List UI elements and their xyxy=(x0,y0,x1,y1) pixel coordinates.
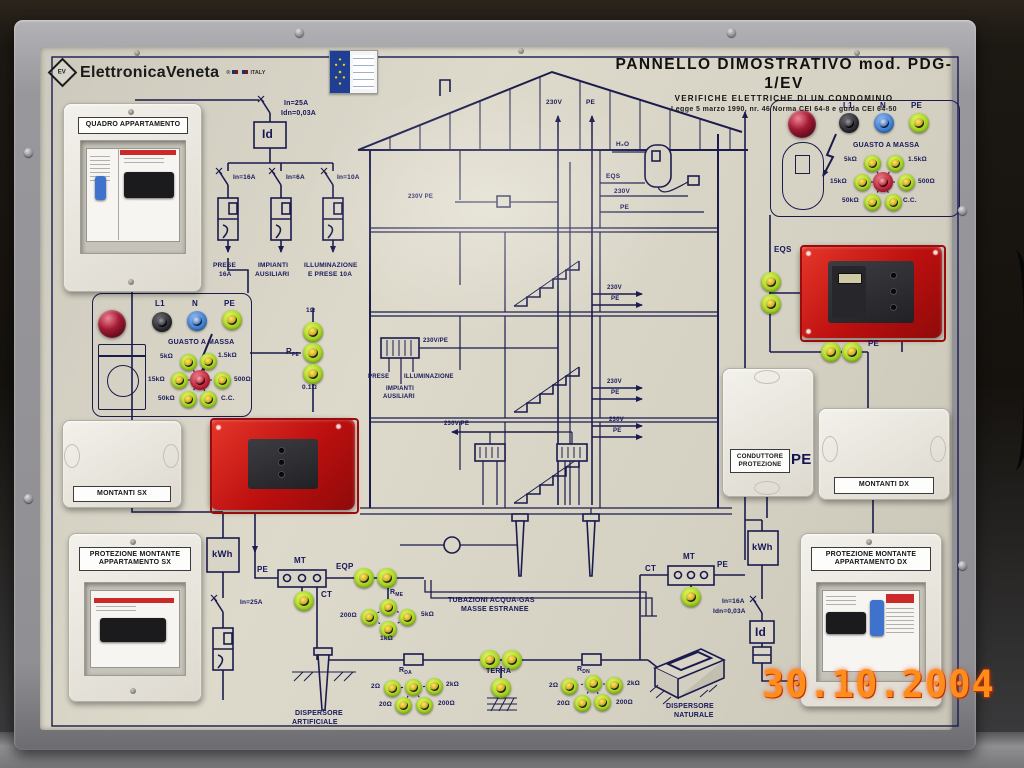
screw-icon xyxy=(727,28,736,37)
dispersore-label: ARTIFICIALE xyxy=(292,719,338,726)
rme-name: RME xyxy=(390,589,403,598)
mcb-toggle[interactable] xyxy=(100,618,166,642)
circuit-label: IMPIANTI xyxy=(258,263,288,270)
resistor-value: 2kΩ xyxy=(446,682,459,689)
screw-icon xyxy=(958,206,967,215)
terminal-label: PE xyxy=(224,300,235,308)
resistor-value: 50kΩ xyxy=(842,198,859,205)
breaker-red-stripe xyxy=(94,598,174,603)
mt-jack[interactable] xyxy=(681,587,701,607)
floor-feed-label: 230V xyxy=(607,379,622,385)
dispersore-label: NATURALE xyxy=(674,712,714,719)
resistor-value: 200Ω xyxy=(616,700,633,707)
pipe-label: TUBAZIONI ACQUA-GAS xyxy=(448,597,535,604)
protezione-dx-label: PROTEZIONE MONTANTEAPPARTAMENTO DX xyxy=(811,547,931,571)
terminal-label: L1 xyxy=(155,300,165,308)
breaker-markings xyxy=(826,596,856,606)
banana-jack-n[interactable] xyxy=(187,311,207,331)
fault-resistor-jack[interactable] xyxy=(887,155,904,172)
mcb-toggle[interactable] xyxy=(124,172,174,198)
mt-label: MT xyxy=(683,553,695,561)
knockout xyxy=(930,436,946,462)
prese-label: PRESE xyxy=(368,374,389,380)
breaker-markings xyxy=(96,606,136,612)
flash-glint xyxy=(336,424,341,429)
floor-feed-label: PE xyxy=(613,428,621,434)
power-cable xyxy=(998,250,1024,470)
fault-resistor-jack[interactable] xyxy=(180,354,197,371)
socket-hole xyxy=(891,289,896,294)
eqs-jack[interactable] xyxy=(761,294,781,314)
resistor-value: 15kΩ xyxy=(148,377,165,384)
fault-common-jack[interactable] xyxy=(873,172,893,192)
rdn-jack[interactable] xyxy=(574,695,591,712)
terra-jack[interactable] xyxy=(491,678,511,698)
strip-feed-label: 230V/PE xyxy=(423,338,448,344)
feed-arrow-label: 230V/PE xyxy=(444,421,469,427)
floor-feed-label: 230V xyxy=(609,417,624,423)
mcb-toggle[interactable] xyxy=(826,612,866,634)
resistor-value: 1.5kΩ xyxy=(218,353,237,360)
pe-jack[interactable] xyxy=(842,342,862,362)
resistor-value: 200Ω xyxy=(340,613,357,620)
rdn-jack[interactable] xyxy=(585,675,602,692)
impianti-label: AUSILIARI xyxy=(383,394,415,400)
eqp-label: EQP xyxy=(336,563,354,571)
washer-panel-line xyxy=(99,355,145,357)
floor-feed-label: 230V xyxy=(607,285,622,291)
rdn-name: RDN xyxy=(577,666,590,675)
screw-icon xyxy=(24,494,33,503)
kwh-meter-label: kWh xyxy=(212,550,233,560)
floor-feed-label: PE xyxy=(611,390,619,396)
socket-hole xyxy=(279,460,284,465)
ev-diamond-icon: EV xyxy=(48,58,78,88)
camera-date-stamp: 30.10.2004 xyxy=(762,666,995,703)
breaker-red-label xyxy=(886,594,914,603)
fault-common-jack[interactable] xyxy=(190,370,210,390)
panel-law-reference: Legge 5 marzo 1990, nr. 46 Norma CEI 64-… xyxy=(608,105,960,114)
protezione-sx-label: PROTEZIONE MONTANTEAPPARTAMENTO SX xyxy=(79,547,191,571)
fault-resistor-jack[interactable] xyxy=(864,155,881,172)
rda-jack[interactable] xyxy=(395,697,412,714)
breaker-rating: In=25A xyxy=(240,600,263,607)
eqs-jack[interactable] xyxy=(761,272,781,292)
rda-jack[interactable] xyxy=(426,678,443,695)
dispersore-label: DISPERSORE xyxy=(295,710,343,717)
resistor-value: 5kΩ xyxy=(844,157,857,164)
photo-of-demo-panel: EV ElettronicaVeneta ®ITALY PANNELLO DIM… xyxy=(0,0,1024,768)
main-breaker-rating: In=25A xyxy=(284,100,308,107)
resistor-value: 5kΩ xyxy=(160,354,173,361)
banana-jack-l1[interactable] xyxy=(152,312,172,332)
conduttore-label: CONDUTTOREPROTEZIONE xyxy=(730,449,790,473)
knockout xyxy=(822,436,838,462)
resistor-value: 20Ω xyxy=(557,701,570,708)
resistor-value: 1kΩ xyxy=(380,636,393,643)
rpe-value: 1Ω xyxy=(306,308,315,315)
pipe-label: MASSE ESTRANEE xyxy=(461,606,529,613)
terminal-label: PE xyxy=(911,102,922,110)
fault-resistor-jack[interactable] xyxy=(200,391,217,408)
breaker-markings xyxy=(886,608,914,634)
resistor-value: 200Ω xyxy=(438,701,455,708)
fault-resistor-jack[interactable] xyxy=(885,194,902,211)
resistor-value: C.C. xyxy=(221,396,235,403)
panel-title: PANNELLO DIMOSTRATIVO mod. PDG-1/EV xyxy=(608,56,960,93)
fault-resistor-jack[interactable] xyxy=(864,194,881,211)
pe-label: PE xyxy=(620,205,629,212)
fault-box-title: GUASTO A MASSA xyxy=(853,142,919,149)
rocker-switch[interactable] xyxy=(832,266,866,318)
banana-jack-n[interactable] xyxy=(874,113,894,133)
rme-jack[interactable] xyxy=(399,609,416,626)
branch-breaker-rating: In=10A xyxy=(337,175,360,182)
knockout xyxy=(754,370,780,384)
ct-label: CT xyxy=(321,591,332,599)
resistor-value: C.C. xyxy=(903,198,917,205)
fault-resistor-jack[interactable] xyxy=(180,391,197,408)
montanti-dx-label: MONTANTI DX xyxy=(834,477,934,494)
banana-jack-pe[interactable] xyxy=(222,310,242,330)
riser-label: PE xyxy=(586,100,595,107)
eqs-label: EQS xyxy=(606,174,620,181)
rpe-jack[interactable] xyxy=(303,322,323,342)
circuit-label: E PRESE 10A xyxy=(308,272,352,279)
resistor-value: 5kΩ xyxy=(421,612,434,619)
eu-flag-icon xyxy=(330,51,350,93)
water-label: H₂O xyxy=(616,142,629,149)
sticker-fine-print xyxy=(353,55,374,89)
pe-label: PE xyxy=(868,340,879,348)
brand-name: ElettronicaVeneta xyxy=(80,65,219,81)
breaker-idn: Idn=0,03A xyxy=(713,609,746,616)
terminal-label: L1 xyxy=(843,102,853,110)
screw-icon xyxy=(128,109,134,115)
kwh-meter-label: kWh xyxy=(752,543,773,553)
ct-jack[interactable] xyxy=(294,591,314,611)
impianti-label: IMPIANTI xyxy=(386,386,414,392)
breaker-rating: In=16A xyxy=(722,599,745,606)
water-heater-icon xyxy=(782,142,824,210)
eu-funding-sticker xyxy=(329,50,378,94)
room-feed-label: 230V PE xyxy=(408,194,433,200)
rpe-value: 0.1Ω xyxy=(302,385,317,392)
pe-label: PE xyxy=(717,561,728,569)
conduttore-pe-label: PE xyxy=(791,452,811,468)
indicator-lamp xyxy=(98,310,126,338)
terra-jack[interactable] xyxy=(480,650,500,670)
dispersore-label: DISPERSORE xyxy=(666,703,714,710)
module-divider xyxy=(118,148,119,240)
socket-hole xyxy=(891,273,896,278)
socket-hole xyxy=(279,472,284,477)
banana-jack-pe[interactable] xyxy=(909,113,929,133)
rda-jack[interactable] xyxy=(384,680,401,697)
flash-glint xyxy=(806,329,811,334)
rda-name: RDA xyxy=(399,667,412,676)
illuminazione-label: ILLUMINAZIONE xyxy=(404,374,454,380)
circuit-label: 16A xyxy=(219,272,232,279)
resistor-value: 2kΩ xyxy=(627,681,640,688)
switch-lens xyxy=(838,273,862,284)
knockout xyxy=(163,444,179,468)
rme-jack[interactable] xyxy=(380,599,397,616)
breaker-red-stripe xyxy=(120,150,176,155)
rcd-toggle[interactable] xyxy=(95,176,106,200)
title-block: PANNELLO DIMOSTRATIVO mod. PDG-1/EV VERI… xyxy=(608,56,960,114)
ct-label: CT xyxy=(645,565,656,573)
riser-label: 230V xyxy=(546,100,562,107)
pe-label: PE xyxy=(257,566,268,574)
rme-jack[interactable] xyxy=(361,609,378,626)
branch-breaker-rating: In=6A xyxy=(286,175,305,182)
screw-icon xyxy=(866,539,872,545)
rdn-jack[interactable] xyxy=(594,694,611,711)
rpe-jack[interactable] xyxy=(303,364,323,384)
screw-icon xyxy=(128,279,134,285)
conduttore-pe-box xyxy=(722,368,814,497)
circuit-label: ILLUMINAZIONE xyxy=(304,263,358,270)
screw-icon xyxy=(24,148,33,157)
resistor-value: 500Ω xyxy=(918,179,935,186)
mt-label: MT xyxy=(294,557,306,565)
brand-logo: EV ElettronicaVeneta ®ITALY xyxy=(52,62,265,83)
eqp-jack[interactable] xyxy=(377,568,397,588)
resistor-value: 500Ω xyxy=(234,377,251,384)
circuit-label: PRESE xyxy=(213,263,236,270)
breaker-markings xyxy=(124,158,164,166)
resistor-value: 20Ω xyxy=(379,702,392,709)
banana-jack-l1[interactable] xyxy=(839,113,859,133)
floor-feed-label: PE xyxy=(611,296,619,302)
heater-detail xyxy=(795,155,810,174)
branch-breaker-rating: In=16A xyxy=(233,175,256,182)
screw-icon xyxy=(958,561,967,570)
screw-icon xyxy=(518,48,524,54)
flash-glint xyxy=(933,250,938,255)
montanti-sx-label: MONTANTI SX xyxy=(73,486,171,502)
rcd-test-tab[interactable] xyxy=(870,600,884,636)
brand-country: ®ITALY xyxy=(226,70,265,76)
screw-icon xyxy=(134,50,140,56)
rdn-jack[interactable] xyxy=(606,677,623,694)
differential-label: Id xyxy=(755,626,766,639)
socket-hole xyxy=(279,448,284,453)
screw-icon xyxy=(130,539,136,545)
resistor-value: 2Ω xyxy=(371,684,380,691)
fault-resistor-jack[interactable] xyxy=(171,372,188,389)
screw-icon xyxy=(295,28,304,37)
washing-machine-icon xyxy=(98,344,146,410)
terra-jack[interactable] xyxy=(502,650,522,670)
main-breaker-idn: Idn=0,03A xyxy=(281,110,316,117)
flash-glint xyxy=(806,251,811,256)
differential-label: Id xyxy=(262,128,273,141)
rda-jack[interactable] xyxy=(416,697,433,714)
volt-label: 230V xyxy=(614,189,630,196)
fault-resistor-jack[interactable] xyxy=(898,174,915,191)
flash-glint xyxy=(216,425,221,430)
terminal-label: N xyxy=(880,102,886,110)
rpe-name: RPE xyxy=(286,348,299,358)
washer-door xyxy=(107,365,139,397)
eqs-label: EQS xyxy=(774,246,792,254)
screw-icon xyxy=(130,688,136,694)
resistor-value: 1.5kΩ xyxy=(908,157,927,164)
panel-subtitle: VERIFICHE ELETTRICHE DI UN CONDOMINIO xyxy=(608,93,960,105)
fault-resistor-jack[interactable] xyxy=(214,372,231,389)
knockout xyxy=(64,444,80,468)
rda-jack[interactable] xyxy=(405,679,422,696)
rpe-jack[interactable] xyxy=(303,343,323,363)
circuit-label: AUSILIARI xyxy=(255,272,289,279)
pe-jack[interactable] xyxy=(821,342,841,362)
resistor-value: 50kΩ xyxy=(158,396,175,403)
resistor-value: 2Ω xyxy=(549,683,558,690)
terra-label: TERRA xyxy=(486,668,511,675)
fault-box-title: GUASTO A MASSA xyxy=(168,339,234,346)
fault-resistor-jack[interactable] xyxy=(854,174,871,191)
knockout xyxy=(754,481,780,495)
eqp-jack[interactable] xyxy=(354,568,374,588)
rdn-jack[interactable] xyxy=(561,678,578,695)
fault-resistor-jack[interactable] xyxy=(200,353,217,370)
quadro-label: QUADRO APPARTAMENTO xyxy=(78,117,188,134)
resistor-value: 15kΩ xyxy=(830,179,847,186)
terminal-label: N xyxy=(192,300,198,308)
socket-hole xyxy=(891,305,896,310)
